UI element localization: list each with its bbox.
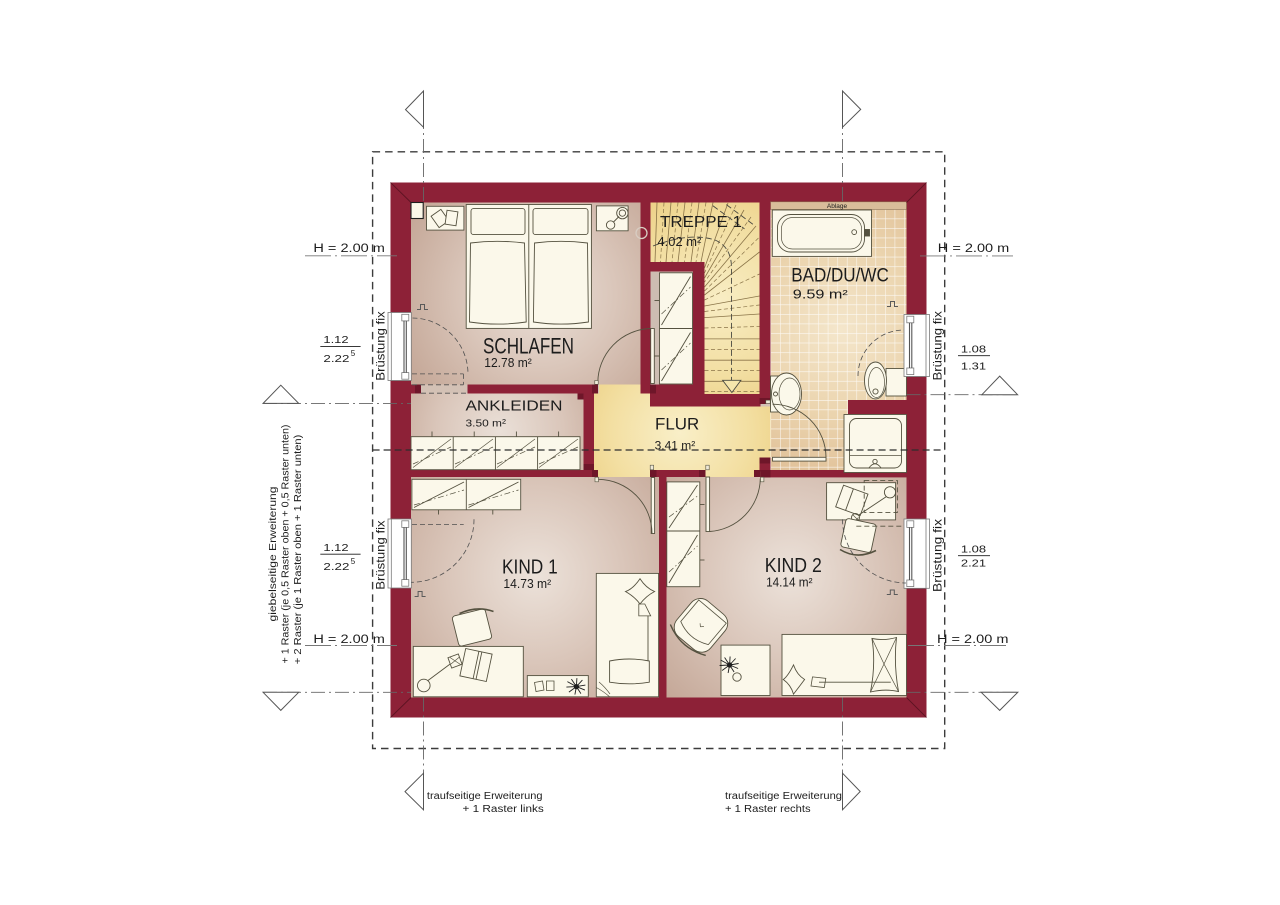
svg-text:2.22: 2.22	[323, 353, 349, 365]
svg-text:1.12: 1.12	[323, 542, 348, 554]
svg-text:3.50 m²: 3.50 m²	[466, 417, 507, 429]
svg-text:5: 5	[351, 349, 356, 358]
svg-text:ANKLEIDEN: ANKLEIDEN	[466, 398, 563, 414]
svg-text:TREPPE 1: TREPPE 1	[660, 214, 742, 231]
svg-text:+ 1 Raster links: + 1 Raster links	[463, 804, 544, 815]
svg-text:2.21: 2.21	[961, 558, 986, 570]
svg-text:1.08: 1.08	[961, 544, 986, 556]
svg-text:1.08: 1.08	[961, 344, 986, 356]
svg-text:1.12: 1.12	[323, 334, 348, 346]
svg-text:4.02 m²: 4.02 m²	[658, 234, 702, 249]
svg-text:Brüstung fix: Brüstung fix	[931, 311, 945, 380]
svg-text:Ablage: Ablage	[827, 203, 848, 210]
svg-text:Brüstung fix: Brüstung fix	[374, 311, 388, 380]
svg-text:14.73 m²: 14.73 m²	[503, 576, 551, 591]
svg-text:5: 5	[351, 557, 356, 566]
svg-text:+ 1 Raster rechts: + 1 Raster rechts	[725, 804, 811, 815]
svg-text:FLUR: FLUR	[655, 414, 699, 433]
svg-text:BAD/DU/WC: BAD/DU/WC	[791, 264, 889, 286]
svg-text:Brüstung fix: Brüstung fix	[374, 520, 388, 589]
svg-text:H = 2.00 m: H = 2.00 m	[313, 243, 385, 255]
svg-text:9.59 m²: 9.59 m²	[793, 287, 849, 302]
svg-text:Brüstung fix: Brüstung fix	[931, 519, 945, 592]
svg-text:2.22: 2.22	[323, 561, 349, 573]
svg-text:+ 2 Raster (je 1 Raster oben +: + 2 Raster (je 1 Raster oben + 1 Raster …	[293, 435, 304, 665]
svg-text:+ 1 Raster (je 0,5 Raster oben: + 1 Raster (je 0,5 Raster oben + 0,5 Ras…	[280, 425, 291, 664]
svg-text:1.31: 1.31	[961, 361, 986, 373]
svg-text:giebelseitige Erweiterung: giebelseitige Erweiterung	[268, 487, 279, 622]
svg-text:traufseitige Erweiterung: traufseitige Erweiterung	[427, 791, 543, 802]
svg-text:H = 2.00 m: H = 2.00 m	[313, 634, 385, 646]
svg-text:H = 2.00 m: H = 2.00 m	[938, 243, 1010, 255]
svg-text:traufseitige Erweiterung: traufseitige Erweiterung	[725, 791, 842, 802]
svg-text:14.14 m²: 14.14 m²	[766, 575, 813, 590]
svg-text:12.78 m²: 12.78 m²	[484, 355, 532, 370]
svg-text:H = 2.00 m: H = 2.00 m	[937, 634, 1009, 646]
